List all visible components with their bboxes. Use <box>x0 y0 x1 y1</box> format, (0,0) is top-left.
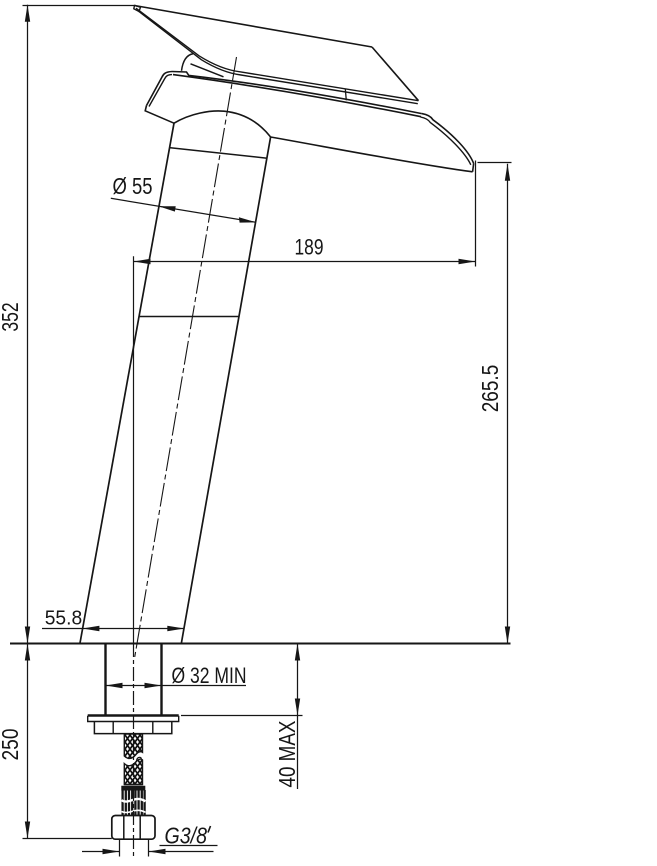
svg-text:Ø 32 MIN: Ø 32 MIN <box>172 663 247 688</box>
svg-text:352: 352 <box>0 302 23 331</box>
svg-text:G3/8: G3/8 <box>165 823 208 849</box>
svg-text:265.5: 265.5 <box>477 365 503 413</box>
svg-text:40 MAX: 40 MAX <box>274 721 300 788</box>
svg-text:Ø 55: Ø 55 <box>113 173 153 199</box>
svg-text:55.8: 55.8 <box>45 608 82 630</box>
svg-text:250: 250 <box>0 729 23 761</box>
svg-text:189: 189 <box>295 235 324 260</box>
